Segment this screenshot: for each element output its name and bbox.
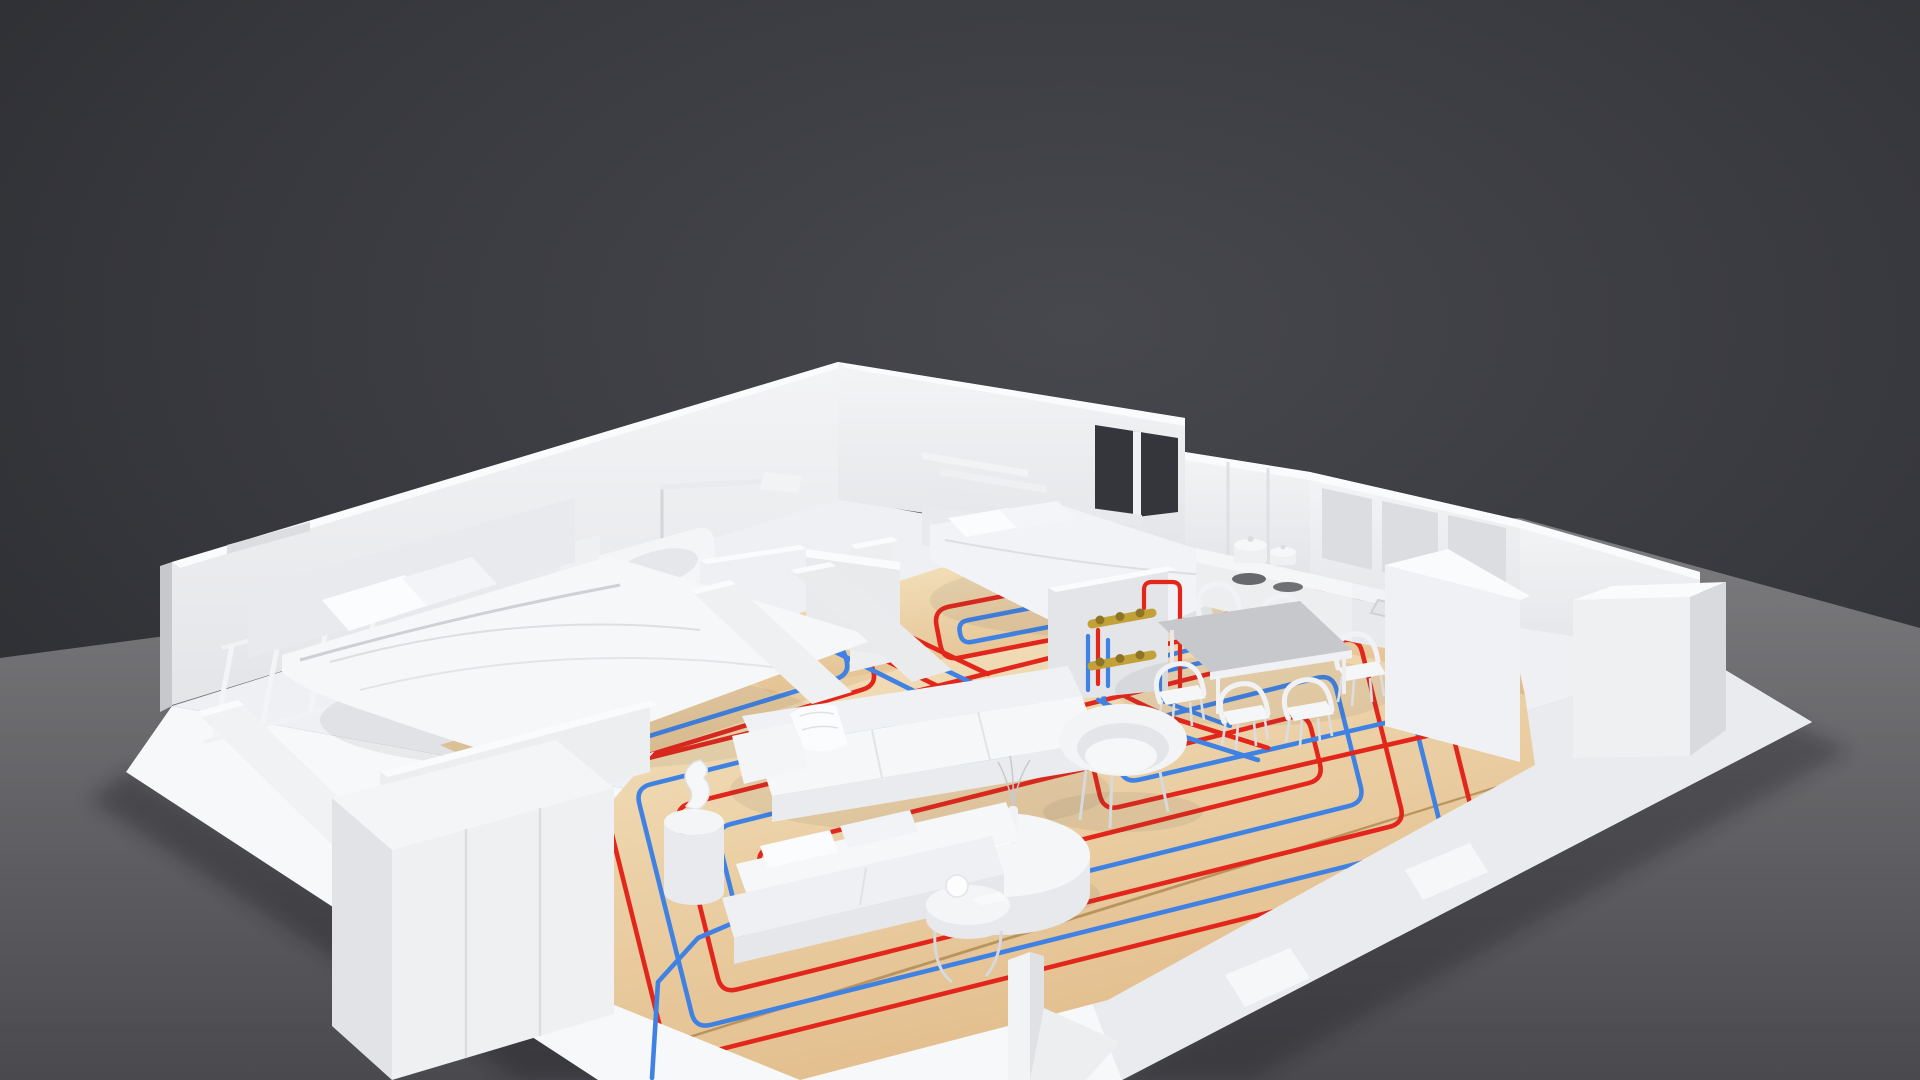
decor-sphere: [946, 875, 968, 897]
stove-burner-2: [1273, 582, 1303, 592]
armchair-shadow: [1043, 792, 1203, 832]
nw-wall-left-cap: [160, 562, 172, 712]
pedestal-top: [664, 809, 724, 835]
armchair-leg: [1110, 776, 1112, 828]
pillar-front: [1008, 952, 1030, 1080]
side-table-top: [926, 885, 1010, 925]
kitchen-window-pane-1: [1322, 488, 1372, 570]
apartment-heating-render: [0, 0, 1920, 1080]
bedroom2-window-mullion: [1133, 431, 1141, 517]
sculpture-figurine: [685, 760, 709, 809]
render-canvas: [0, 0, 1920, 1080]
east-column-side: [1690, 582, 1726, 756]
east-column-face: [1573, 597, 1690, 758]
armchair-seat: [1085, 738, 1157, 774]
stove-burner-1: [1232, 573, 1266, 585]
